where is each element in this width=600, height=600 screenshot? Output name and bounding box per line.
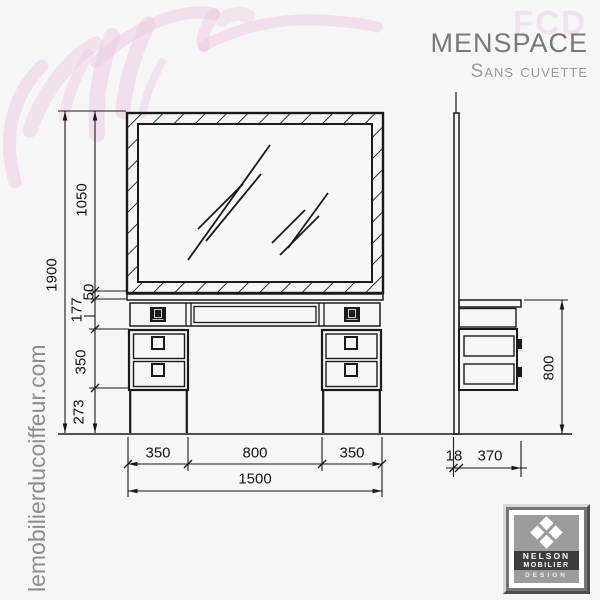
dim-knee-space-width: 800: [242, 445, 267, 462]
nelson-mobilier-logo: NELSON MOBILIER DESIGN: [503, 504, 590, 594]
dim-panel-thickness: 18: [446, 448, 463, 465]
mirror-glass: [138, 124, 372, 282]
unit-legs: [130, 390, 380, 433]
dim-apron-height: 177: [69, 297, 86, 322]
logo-core: NELSON MOBILIER DESIGN: [514, 515, 579, 583]
drawer-handle-profile: [517, 367, 522, 377]
dim-mirror-height: 1050: [74, 183, 91, 216]
dim-base-clearance: 273: [71, 399, 88, 424]
logo-white-frame: NELSON MOBILIER DESIGN: [509, 510, 584, 588]
dim-right-unit-width: 350: [339, 445, 364, 462]
dim-worktop-depth: 370: [477, 448, 502, 465]
logo-brand-line3: DESIGN: [514, 570, 579, 581]
dim-left-unit-width: 350: [145, 445, 170, 462]
right-outlet: [344, 307, 360, 322]
apron-center-panel: [194, 307, 316, 323]
dim-total-width: 1500: [238, 471, 271, 488]
drawer-handle: [152, 364, 164, 376]
dim-worktop-height: 800: [541, 355, 558, 380]
counter-top: [127, 294, 383, 300]
drawer-handle: [152, 337, 164, 349]
left-outlet: [150, 307, 166, 322]
worktop-profile: [459, 300, 521, 307]
diamond-cluster-icon: [530, 516, 563, 549]
right-drawer-unit: [322, 330, 381, 390]
apron-profile: [459, 309, 516, 328]
dim-total-height: 1900: [44, 258, 61, 291]
website-vertical-text: lemobilierducoiffeur.com: [24, 344, 51, 592]
drawer-handle: [345, 337, 357, 349]
logo-brand-line2: MOBILIER: [514, 561, 579, 570]
drawer-box-profile: [459, 329, 517, 390]
side-view: [454, 92, 522, 434]
front-view: [127, 113, 383, 433]
product-subtitle: Sans cuvette: [471, 61, 588, 83]
logo-brand-line1: NELSON: [514, 551, 579, 561]
drawer-handle-profile: [517, 339, 522, 349]
left-drawer-unit: [129, 330, 188, 390]
dim-drawer-height: 350: [73, 349, 90, 374]
product-title: MENSPACE: [430, 28, 588, 59]
technical-drawing-page: FCD MENSPACE Sans cuvette lemobilierduco…: [0, 0, 600, 600]
drawer-handle: [345, 364, 357, 376]
